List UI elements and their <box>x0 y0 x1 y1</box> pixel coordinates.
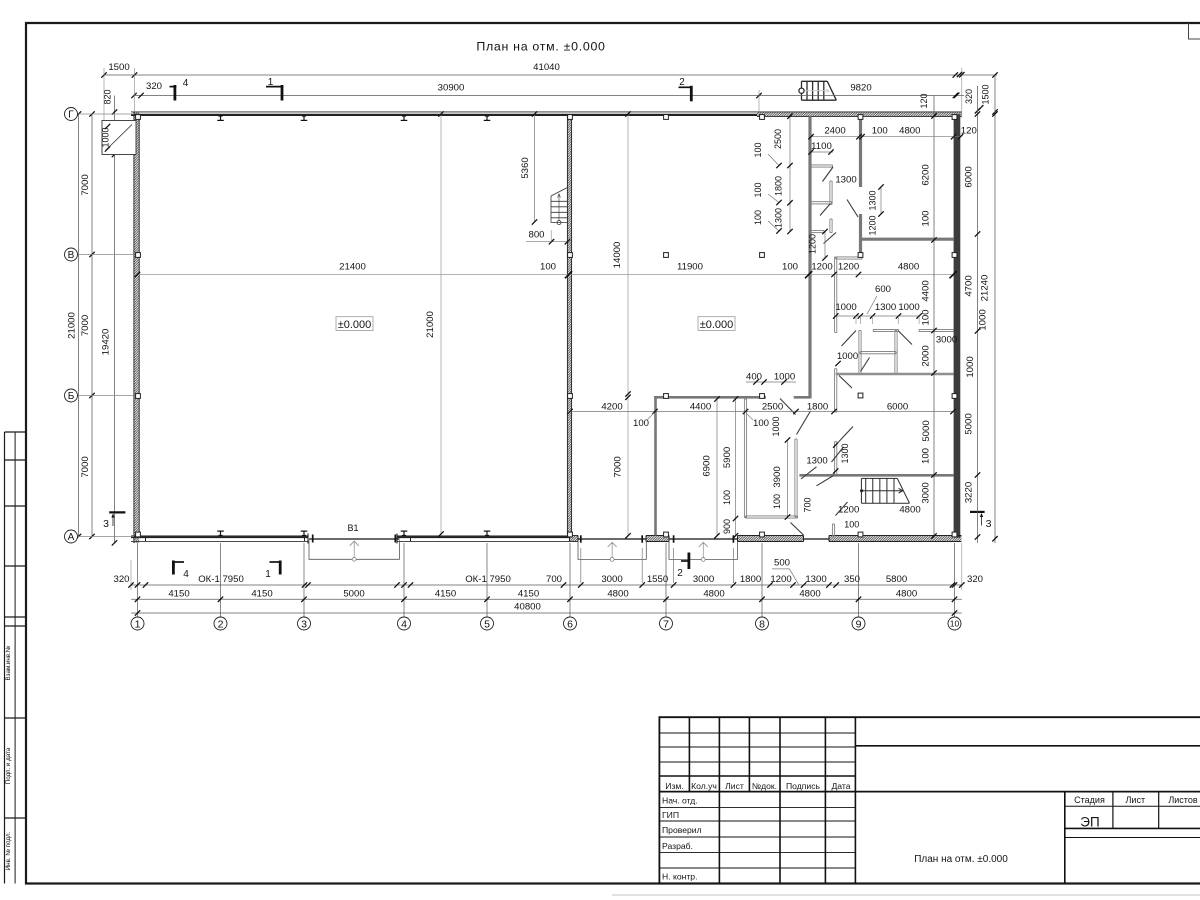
svg-text:5900: 5900 <box>722 447 733 468</box>
svg-text:План на отм. ±0.000: План на отм. ±0.000 <box>914 854 1008 865</box>
svg-text:21000: 21000 <box>67 312 78 339</box>
svg-text:План на отм. ±0.000: План на отм. ±0.000 <box>476 39 605 53</box>
svg-text:4150: 4150 <box>251 589 272 600</box>
svg-text:4150: 4150 <box>518 589 539 600</box>
svg-text:3900: 3900 <box>772 466 783 487</box>
svg-text:1: 1 <box>265 569 271 580</box>
svg-text:21240: 21240 <box>980 275 991 302</box>
svg-text:4800: 4800 <box>607 589 628 600</box>
svg-text:100: 100 <box>540 262 556 273</box>
svg-text:1500: 1500 <box>981 84 991 104</box>
svg-text:2500: 2500 <box>762 402 783 413</box>
svg-text:1300: 1300 <box>835 175 856 186</box>
svg-text:1500: 1500 <box>108 62 129 73</box>
svg-text:120: 120 <box>919 93 929 108</box>
svg-text:100: 100 <box>921 448 932 464</box>
svg-text:№док.: №док. <box>752 781 777 791</box>
svg-text:1000: 1000 <box>837 351 858 362</box>
svg-text:3000: 3000 <box>921 482 932 503</box>
svg-text:1200: 1200 <box>811 262 832 273</box>
svg-text:4800: 4800 <box>899 125 920 136</box>
svg-text:Стадия: Стадия <box>1074 795 1105 805</box>
svg-text:1800: 1800 <box>807 402 828 413</box>
svg-text:100: 100 <box>753 418 769 429</box>
svg-text:120: 120 <box>961 125 977 136</box>
svg-text:1800: 1800 <box>740 574 761 585</box>
svg-text:100: 100 <box>872 125 888 136</box>
svg-text:5000: 5000 <box>921 420 932 441</box>
svg-text:Нач. отд.: Нач. отд. <box>662 796 698 806</box>
svg-text:100: 100 <box>722 490 732 505</box>
svg-text:820: 820 <box>103 89 113 104</box>
svg-text:7000: 7000 <box>80 315 91 336</box>
svg-text:8: 8 <box>759 618 765 630</box>
svg-text:100: 100 <box>921 210 932 226</box>
svg-text:4: 4 <box>183 569 189 580</box>
svg-text:41040: 41040 <box>533 62 560 73</box>
svg-text:100: 100 <box>782 262 798 273</box>
svg-text:4400: 4400 <box>690 402 711 413</box>
svg-text:В1: В1 <box>347 523 358 533</box>
svg-text:А: А <box>68 532 75 543</box>
svg-text:Г: Г <box>68 110 74 121</box>
svg-text:Проверил: Проверил <box>662 825 702 835</box>
svg-text:1300: 1300 <box>805 574 826 585</box>
svg-text:19420: 19420 <box>101 329 112 356</box>
svg-text:4700: 4700 <box>964 275 975 296</box>
svg-text:9: 9 <box>856 618 862 630</box>
svg-text:Кол.уч: Кол.уч <box>691 781 717 791</box>
svg-text:800: 800 <box>528 230 544 241</box>
svg-text:700: 700 <box>546 574 562 585</box>
svg-text:4200: 4200 <box>601 402 622 413</box>
svg-text:3220: 3220 <box>964 482 975 503</box>
svg-text:Инв. № подл.: Инв. № подл. <box>5 831 12 870</box>
svg-text:7000: 7000 <box>613 456 624 477</box>
svg-text:6000: 6000 <box>964 166 975 187</box>
svg-text:6000: 6000 <box>887 402 908 413</box>
svg-text:±0.000: ±0.000 <box>700 319 734 331</box>
svg-text:2000: 2000 <box>921 345 932 366</box>
svg-text:1200: 1200 <box>838 505 859 516</box>
svg-text:7000: 7000 <box>80 174 91 195</box>
svg-text:Листов: Листов <box>1168 795 1197 805</box>
svg-text:10: 10 <box>950 619 960 629</box>
svg-text:3: 3 <box>103 518 109 530</box>
svg-text:1000: 1000 <box>978 309 989 330</box>
svg-text:1200: 1200 <box>808 234 818 254</box>
svg-text:4: 4 <box>183 78 189 89</box>
svg-text:1200: 1200 <box>770 574 791 585</box>
svg-text:350: 350 <box>844 574 860 585</box>
svg-text:Подп. и дата: Подп. и дата <box>5 747 12 784</box>
svg-text:100: 100 <box>772 494 782 509</box>
svg-text:11900: 11900 <box>677 262 703 273</box>
svg-text:1550: 1550 <box>647 574 668 585</box>
svg-text:5360: 5360 <box>520 157 531 178</box>
svg-text:40800: 40800 <box>514 602 541 613</box>
svg-text:900: 900 <box>722 519 732 534</box>
svg-text:100: 100 <box>844 520 859 530</box>
svg-text:100: 100 <box>753 210 763 225</box>
svg-text:9820: 9820 <box>850 83 871 94</box>
svg-text:±0.000: ±0.000 <box>338 319 372 331</box>
svg-text:2400: 2400 <box>824 125 845 136</box>
svg-text:ЭП: ЭП <box>1080 815 1099 830</box>
svg-text:320: 320 <box>964 89 974 104</box>
svg-text:100: 100 <box>921 309 932 325</box>
svg-text:400: 400 <box>746 372 762 383</box>
svg-text:7000: 7000 <box>80 456 91 477</box>
svg-text:21400: 21400 <box>339 262 366 273</box>
svg-text:1300: 1300 <box>868 190 878 210</box>
svg-text:3: 3 <box>986 518 992 530</box>
svg-text:3000: 3000 <box>693 574 714 585</box>
svg-text:5000: 5000 <box>343 589 364 600</box>
svg-text:Лист: Лист <box>725 781 744 791</box>
svg-text:5000: 5000 <box>964 413 975 434</box>
svg-text:320: 320 <box>113 574 129 585</box>
svg-text:1: 1 <box>135 618 141 630</box>
svg-text:2: 2 <box>677 568 683 579</box>
svg-text:14000: 14000 <box>612 242 623 269</box>
svg-text:Подпись: Подпись <box>786 781 821 791</box>
svg-text:1300: 1300 <box>806 456 827 467</box>
svg-text:100: 100 <box>753 142 763 157</box>
svg-text:1000: 1000 <box>101 127 111 147</box>
svg-text:Н. контр.: Н. контр. <box>662 872 697 882</box>
svg-text:1200: 1200 <box>838 262 859 273</box>
svg-text:1000: 1000 <box>771 416 781 436</box>
svg-text:600: 600 <box>875 284 891 295</box>
svg-text:4800: 4800 <box>799 589 820 600</box>
svg-text:2500: 2500 <box>773 129 783 149</box>
svg-text:Разраб.: Разраб. <box>662 841 693 851</box>
svg-text:320: 320 <box>967 574 983 585</box>
svg-text:6200: 6200 <box>921 164 932 185</box>
svg-text:Лист: Лист <box>1126 795 1146 805</box>
svg-text:1300: 1300 <box>840 443 850 463</box>
svg-text:1000: 1000 <box>898 302 919 313</box>
svg-text:1000: 1000 <box>774 372 795 383</box>
svg-text:2: 2 <box>218 618 224 630</box>
svg-text:ОК-1 7950: ОК-1 7950 <box>198 574 244 585</box>
svg-text:3000: 3000 <box>936 335 957 346</box>
svg-text:1000: 1000 <box>835 302 856 313</box>
svg-text:1: 1 <box>268 77 274 88</box>
svg-text:4800: 4800 <box>896 589 917 600</box>
svg-text:Дата: Дата <box>831 781 850 791</box>
svg-text:1100: 1100 <box>811 141 832 152</box>
svg-text:500: 500 <box>774 558 790 569</box>
svg-text:В: В <box>68 250 75 261</box>
svg-text:4800: 4800 <box>703 589 724 600</box>
svg-text:30900: 30900 <box>438 83 465 94</box>
svg-text:5: 5 <box>484 618 490 630</box>
svg-text:4800: 4800 <box>899 505 920 516</box>
svg-text:Взам.инв.№: Взам.инв.№ <box>5 645 12 680</box>
svg-text:320: 320 <box>146 81 162 92</box>
svg-text:4: 4 <box>401 618 407 630</box>
svg-text:21000: 21000 <box>425 311 436 338</box>
svg-text:ГИП: ГИП <box>662 810 679 820</box>
svg-text:4150: 4150 <box>435 589 456 600</box>
svg-text:6900: 6900 <box>702 455 713 476</box>
svg-text:2: 2 <box>679 77 685 88</box>
svg-text:700: 700 <box>803 497 813 512</box>
svg-text:1300: 1300 <box>774 208 784 228</box>
svg-text:4150: 4150 <box>168 589 189 600</box>
svg-text:1000: 1000 <box>965 356 976 377</box>
svg-text:6: 6 <box>567 618 573 630</box>
svg-text:100: 100 <box>633 418 649 429</box>
svg-text:1200: 1200 <box>868 215 878 235</box>
svg-text:4400: 4400 <box>921 280 932 301</box>
svg-text:100: 100 <box>753 182 763 197</box>
svg-text:7: 7 <box>663 618 669 630</box>
svg-text:5800: 5800 <box>886 574 907 585</box>
svg-text:1800: 1800 <box>774 176 784 196</box>
svg-text:3: 3 <box>301 618 307 630</box>
svg-text:Б: Б <box>68 391 75 402</box>
svg-text:ОК-1 7950: ОК-1 7950 <box>465 574 511 585</box>
svg-text:1300: 1300 <box>875 302 896 313</box>
svg-text:3000: 3000 <box>601 574 622 585</box>
svg-text:4800: 4800 <box>898 262 919 273</box>
svg-text:Изм.: Изм. <box>665 781 683 791</box>
